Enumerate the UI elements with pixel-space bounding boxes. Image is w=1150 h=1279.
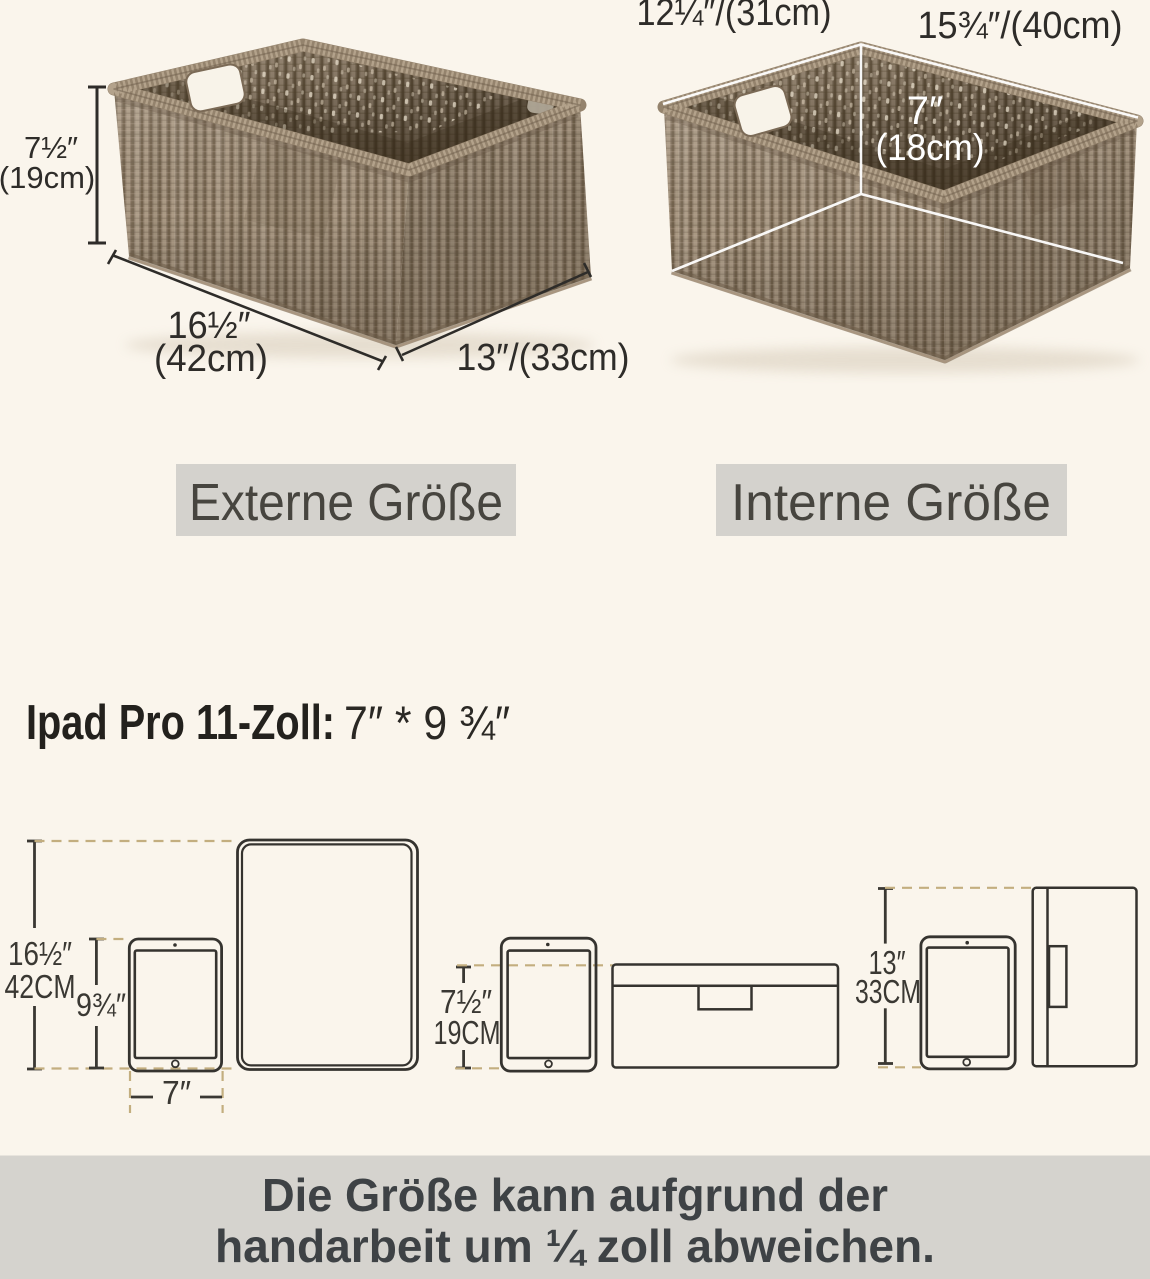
svg-text:(18cm): (18cm) xyxy=(876,127,985,168)
svg-text:7″: 7″ xyxy=(162,1074,191,1111)
svg-text:(19cm): (19cm) xyxy=(0,160,95,195)
svg-text:13″/(33cm): 13″/(33cm) xyxy=(457,337,630,379)
svg-text:Externe Größe: Externe Größe xyxy=(189,474,503,532)
svg-text:12¼″/(31cm): 12¼″/(31cm) xyxy=(637,0,832,34)
svg-text:Die Größe kann aufgrund der: Die Größe kann aufgrund der xyxy=(262,1169,888,1221)
svg-text:16½″: 16½″ xyxy=(8,935,72,972)
svg-text:15¾″/(40cm): 15¾″/(40cm) xyxy=(918,5,1123,47)
svg-text:(42cm): (42cm) xyxy=(154,338,268,380)
svg-text:handarbeit um ¼ zoll abweichen: handarbeit um ¼ zoll abweichen. xyxy=(215,1220,935,1272)
svg-text:Interne Größe: Interne Größe xyxy=(731,474,1051,532)
svg-text:Ipad Pro 11-Zoll:: Ipad Pro 11-Zoll: xyxy=(26,696,335,750)
svg-text:9¾″: 9¾″ xyxy=(76,987,126,1023)
svg-text:42CM: 42CM xyxy=(5,968,76,1005)
svg-text:19CM: 19CM xyxy=(434,1014,501,1051)
svg-text:33CM: 33CM xyxy=(855,973,921,1010)
svg-text:7″ * 9 ¾″: 7″ * 9 ¾″ xyxy=(344,696,510,749)
